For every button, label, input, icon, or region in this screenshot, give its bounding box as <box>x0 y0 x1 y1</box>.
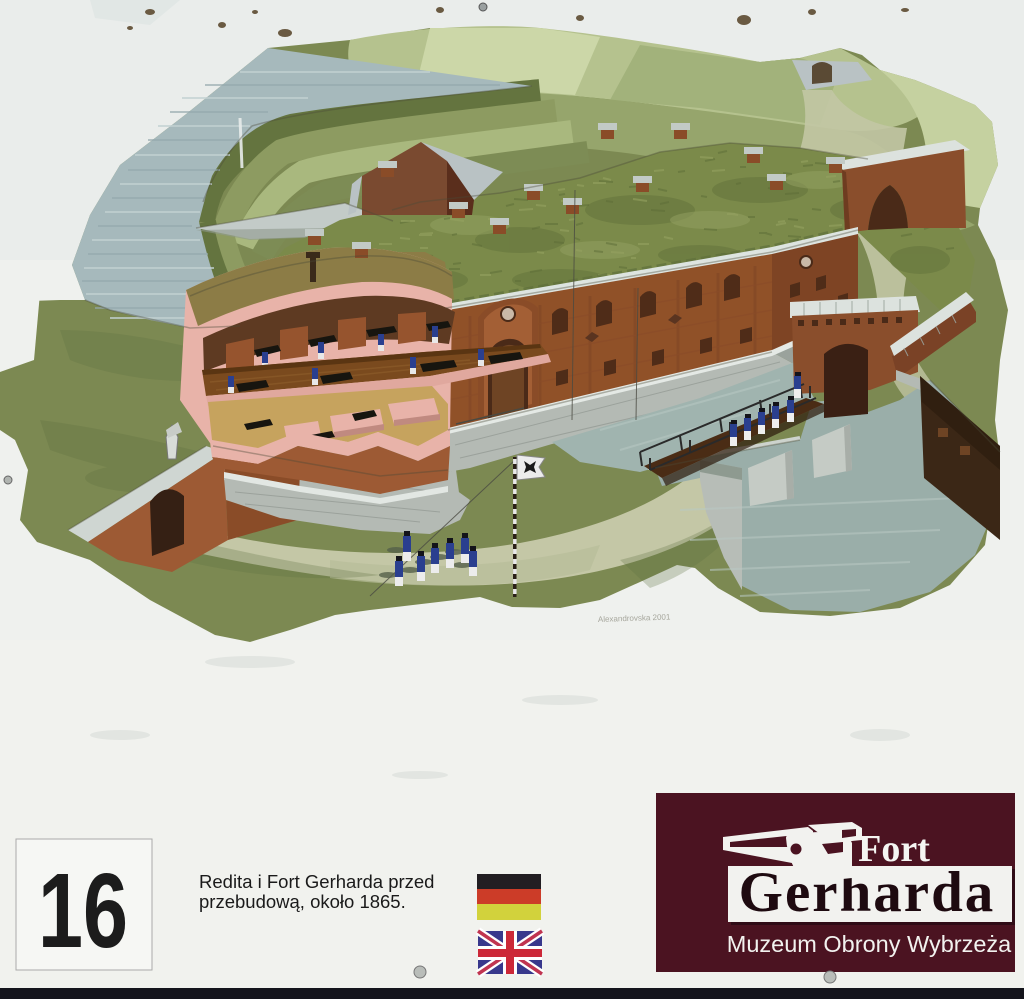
svg-text:Muzeum Obrony Wybrzeża: Muzeum Obrony Wybrzeża <box>727 931 1012 957</box>
svg-text:przebudową, około 1865.: przebudową, około 1865. <box>199 891 406 912</box>
svg-text:16: 16 <box>38 852 128 970</box>
svg-text:Redita i Fort Gerharda przed: Redita i Fort Gerharda przed <box>199 871 434 892</box>
svg-text:Gerharda: Gerharda <box>739 861 996 924</box>
svg-text:Fort: Fort <box>858 828 930 870</box>
